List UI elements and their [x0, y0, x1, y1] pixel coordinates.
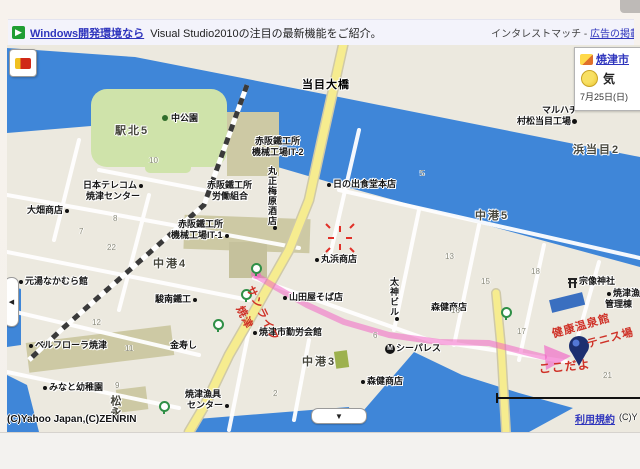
num: 22 [107, 243, 116, 252]
label-akasaka-ironworks3: 赤阪鐵工所 [178, 220, 223, 229]
hotel-m-icon: M [385, 344, 395, 354]
label-toume-ohashi: 当目大橋 [302, 80, 350, 91]
num: 10 [149, 156, 158, 165]
label-machine-plant-it2: 機械工場IT-2 [252, 148, 304, 157]
ad-info-link[interactable]: 広告の掲載 [590, 29, 634, 40]
num: 6 [373, 331, 377, 340]
handwriting-kokodayo: ここだよ [538, 355, 591, 376]
pan-down-arrow[interactable]: ▼ [311, 408, 367, 424]
label-nakaminato4: 中港4 [153, 259, 187, 270]
num: 13 [445, 252, 454, 261]
weather-widget: 焼津市 気 7月25日(日) [574, 47, 640, 111]
interest-match-note: インタレストマッチ - 広告の掲載 [491, 25, 634, 40]
label-yaizu-fishing-port: 焼津漁港 [607, 289, 640, 298]
label-ohata-shoten: 大畑商店 [27, 206, 69, 215]
num: 12 [92, 318, 101, 327]
label-machine-plant-it1: 機械工場IT-1 [171, 231, 229, 240]
weather-date: 7月25日(日) [580, 90, 640, 103]
label-yaizu-gyogu-center: センター [187, 401, 229, 410]
scanned-screenshot: ▶ Windows開発環境なら Visual Studio2010の注目の最新機… [0, 0, 640, 468]
num: 8 [113, 214, 117, 223]
label-kanri-building: 管理棟 [605, 300, 632, 309]
label-akasaka-ironworks2: 赤阪鐵工所 [207, 181, 252, 190]
label-moriken-shoten-lower: 森健商店 [361, 377, 403, 386]
bus-stop-icon [159, 401, 170, 412]
scale-bar [496, 397, 640, 399]
label-yamadaya-soba: 山田屋そば店 [283, 293, 343, 302]
bus-stop-icon [251, 263, 262, 274]
paper-margin [0, 432, 640, 469]
bus-stop-icon [213, 319, 224, 330]
label-yaizu-gyogu: 焼津漁具 [185, 390, 221, 399]
label-naka-park: 中公園 [171, 114, 198, 123]
label-muramatsu-toume-plant: 村松当目工場 [517, 117, 571, 126]
weather-label: 気 [603, 70, 615, 87]
label-minato-kindergarten: みなと幼稚園 [43, 383, 103, 392]
map-labels-layer: 当目大橋駅北5中公園日本テレコム焼津センター大畑商店赤阪鐵工所機械工場IT-2赤… [7, 45, 640, 432]
weather-icon [580, 54, 593, 65]
label-japan-telecom: 日本テレコム [83, 181, 143, 190]
pan-left-arrow[interactable]: ◀ [7, 277, 19, 327]
num: 15 [481, 277, 490, 286]
interest-match-label: インタレストマッチ - [491, 29, 587, 40]
label-hamatoume2: 浜当目2 [573, 145, 620, 156]
map-canvas[interactable]: 当目大橋駅北5中公園日本テレコム焼津センター大畑商店赤阪鐵工所機械工場IT-2赤… [7, 45, 640, 432]
label-motoyu-nakamura: 元湯なかむら館 [19, 277, 88, 286]
map-tool-icon [15, 58, 31, 69]
label-sunnan-tekko: 駿南鐵工 [155, 295, 197, 304]
num: 7 [79, 227, 83, 236]
label-taijin-building: 太神ビル [389, 277, 399, 321]
num: 17 [517, 327, 526, 336]
tree-icon [162, 115, 168, 121]
play-glyph: ▶ [15, 27, 22, 38]
num: 5 [420, 169, 424, 178]
ad-text: Visual Studio2010の注目の最新機能をご紹介。 [150, 25, 381, 41]
ad-banner: ▶ Windows開発環境なら Visual Studio2010の注目の最新機… [8, 19, 634, 46]
copyright-partial: (C)Y [619, 412, 638, 422]
map-tool-button[interactable] [9, 49, 37, 77]
label-yaizu-center: 焼津センター [86, 192, 140, 201]
pan-left-glyph: ◀ [9, 298, 14, 306]
label-ekikita5: 駅北5 [115, 126, 149, 137]
factory-icon [572, 119, 577, 124]
label-labor-union: 労働組合 [212, 192, 248, 201]
label-nakaminato5: 中港5 [475, 211, 509, 222]
torii-icon [568, 278, 577, 288]
map-copyright: (C)Yahoo Japan,(C)ZENRIN [7, 414, 136, 425]
num: 18 [531, 267, 540, 276]
label-akasaka-ironworks: 赤阪鐵工所 [255, 137, 300, 146]
label-moriken-shoten-upper: 森健商店 [431, 303, 467, 312]
num: 2 [273, 389, 277, 398]
num: 9 [115, 381, 119, 390]
num: 11 [125, 344, 133, 353]
num: 16 [451, 306, 460, 315]
scan-corner-shadow [620, 0, 640, 13]
label-sea-palace: シーパレス [396, 344, 441, 353]
play-icon: ▶ [12, 26, 25, 39]
label-marusho-umehara-sake: 丸正梅原酒店 [267, 166, 277, 230]
bus-stop-icon [501, 307, 512, 318]
label-munakata-shrine: 宗像神社 [579, 277, 615, 286]
num: 21 [603, 371, 612, 380]
pan-down-glyph: ▼ [335, 412, 343, 421]
label-kinzushi: 金寿し [170, 341, 197, 350]
label-belleflora-yaizu: ベルフローラ焼津 [29, 341, 107, 350]
city-link[interactable]: 焼津市 [596, 51, 629, 67]
ad-link[interactable]: Windows開発環境なら [30, 25, 144, 41]
terms-link[interactable]: 利用規約 [575, 411, 615, 426]
label-nakaminato3: 中港3 [302, 357, 336, 368]
label-maruhachi: マルハチ [542, 106, 578, 115]
moon-icon [581, 70, 598, 87]
label-maruhama-shoten: 丸浜商店 [315, 255, 357, 264]
label-hinode-shokudo: 日の出食堂本店 [327, 180, 396, 189]
